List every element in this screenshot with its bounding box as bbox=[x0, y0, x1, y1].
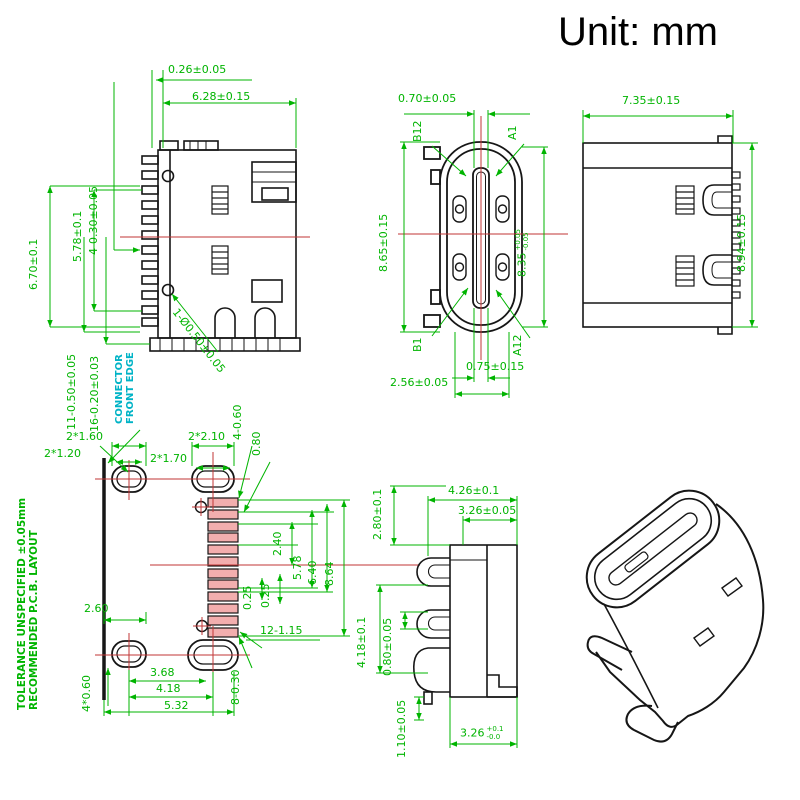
dim-pcb-418: 4.18 bbox=[156, 682, 181, 695]
dim-835-tolerance: +0.05-0.05 bbox=[515, 229, 530, 250]
profile-view bbox=[414, 545, 517, 704]
dim-240: 2.40 bbox=[271, 532, 284, 557]
dim-426: 4.26±0.1 bbox=[448, 484, 499, 497]
dim-670: 6.70±0.1 bbox=[27, 239, 40, 290]
dim-864: 8.64 bbox=[323, 562, 336, 587]
dim-735: 7.35±0.15 bbox=[622, 94, 680, 107]
dim-256: 2.56±0.05 bbox=[390, 376, 448, 389]
dim-12-pads: 12-1.15 bbox=[260, 624, 302, 637]
dim-pin-width: 0.26±0.05 bbox=[168, 63, 226, 76]
dim-tongue-width: 0.70±0.05 bbox=[398, 92, 456, 105]
dim-640: 6.40 bbox=[306, 561, 319, 586]
front-view-hatch bbox=[212, 186, 228, 274]
dim-326-bottom: 3.26+0.1-0.0 bbox=[460, 726, 504, 741]
dim-pcb-578: 5.78 bbox=[291, 556, 304, 581]
dim-pad-4-060: 4-0.60 bbox=[231, 405, 244, 440]
side-view bbox=[583, 136, 740, 334]
dim-4x060: 4*0.60 bbox=[80, 675, 93, 712]
pin-label-a1: A1 bbox=[506, 125, 519, 140]
pin-label-b12: B12 bbox=[411, 120, 424, 142]
dim-368: 3.68 bbox=[150, 666, 175, 679]
front-view-dimensions bbox=[50, 70, 296, 463]
dim-326-top: 3.26±0.05 bbox=[458, 504, 516, 517]
dim-326-tolerance: +0.1-0.0 bbox=[487, 726, 504, 741]
dim-835-base: 8.35 bbox=[516, 253, 529, 278]
top-view bbox=[424, 142, 522, 332]
pin-label-a12: A12 bbox=[511, 334, 524, 356]
technical-drawing-canvas: Unit: mm 0.26±0.05 6.28±0.15 4-0.30±0.05… bbox=[0, 0, 800, 800]
isometric-view bbox=[575, 479, 764, 742]
dim-075: 0.75±0.15 bbox=[466, 360, 524, 373]
dim-260: 2.60 bbox=[84, 602, 109, 615]
dim-025-left: 0.25 bbox=[241, 586, 254, 611]
front-view-hole-top bbox=[163, 171, 174, 182]
dim-pad-080: 0.80 bbox=[250, 432, 263, 457]
note-pcb-recommended-line: RECOMMENDED P.C.B. LAYOUT bbox=[28, 498, 40, 710]
front-view bbox=[142, 141, 300, 351]
dim-326-tol-minus: -0.0 bbox=[487, 734, 504, 742]
dim-532: 5.32 bbox=[164, 699, 189, 712]
front-view-pins bbox=[142, 156, 158, 326]
note-connector-front-edge: CONNECTOR FRONT EDGE bbox=[114, 352, 136, 424]
side-view-hatch bbox=[676, 186, 694, 286]
front-view-hole-bottom bbox=[163, 285, 174, 296]
dim-280: 2.80±0.1 bbox=[371, 489, 384, 540]
dim-894: 8.94±0.15 bbox=[735, 214, 748, 272]
dim-835: 8.35+0.05-0.05 bbox=[515, 229, 530, 277]
dim-578: 5.78±0.1 bbox=[71, 211, 84, 262]
note-connector-front-edge-line1: CONNECTOR bbox=[114, 352, 125, 424]
unit-label: Unit: mm bbox=[558, 10, 718, 55]
dim-11-pitch: 11-0.50±0.05 bbox=[65, 354, 78, 430]
dim-body-width: 6.28±0.15 bbox=[192, 90, 250, 103]
dim-865: 8.65±0.15 bbox=[377, 214, 390, 272]
dim-8-030: 8-0.30 bbox=[229, 670, 242, 705]
dim-profile-080: 0.80±0.05 bbox=[381, 618, 394, 676]
dim-pad-2x210: 2*2.10 bbox=[188, 430, 225, 443]
dim-pad-2x170: 2*1.70 bbox=[150, 452, 187, 465]
pcb-signal-pads bbox=[208, 498, 238, 637]
dim-110: 1.10±0.05 bbox=[395, 700, 408, 758]
dim-835-tol-minus: -0.05 bbox=[523, 229, 531, 250]
pcb-pads-large bbox=[112, 466, 238, 670]
note-pcb-layout: TOLERANCE UNSPECIFIED ±0.05mm RECOMMENDE… bbox=[16, 498, 40, 710]
dim-profile-418: 4.18±0.1 bbox=[355, 617, 368, 668]
dim-326-base: 3.26 bbox=[460, 727, 485, 740]
dim-025-right: 0.25 bbox=[259, 584, 272, 609]
note-connector-front-edge-line2: FRONT EDGE bbox=[125, 352, 136, 424]
dim-pad-2x160: 2*1.60 bbox=[66, 430, 103, 443]
dim-16-pitch: 16-0.20±0.03 bbox=[88, 356, 101, 432]
dim-4-holes: 4-0.30±0.05 bbox=[87, 186, 100, 255]
pin-label-b1: B1 bbox=[411, 337, 424, 352]
note-pcb-tolerance-line: TOLERANCE UNSPECIFIED ±0.05mm bbox=[16, 498, 28, 710]
dim-pad-2x120: 2*1.20 bbox=[44, 447, 81, 460]
